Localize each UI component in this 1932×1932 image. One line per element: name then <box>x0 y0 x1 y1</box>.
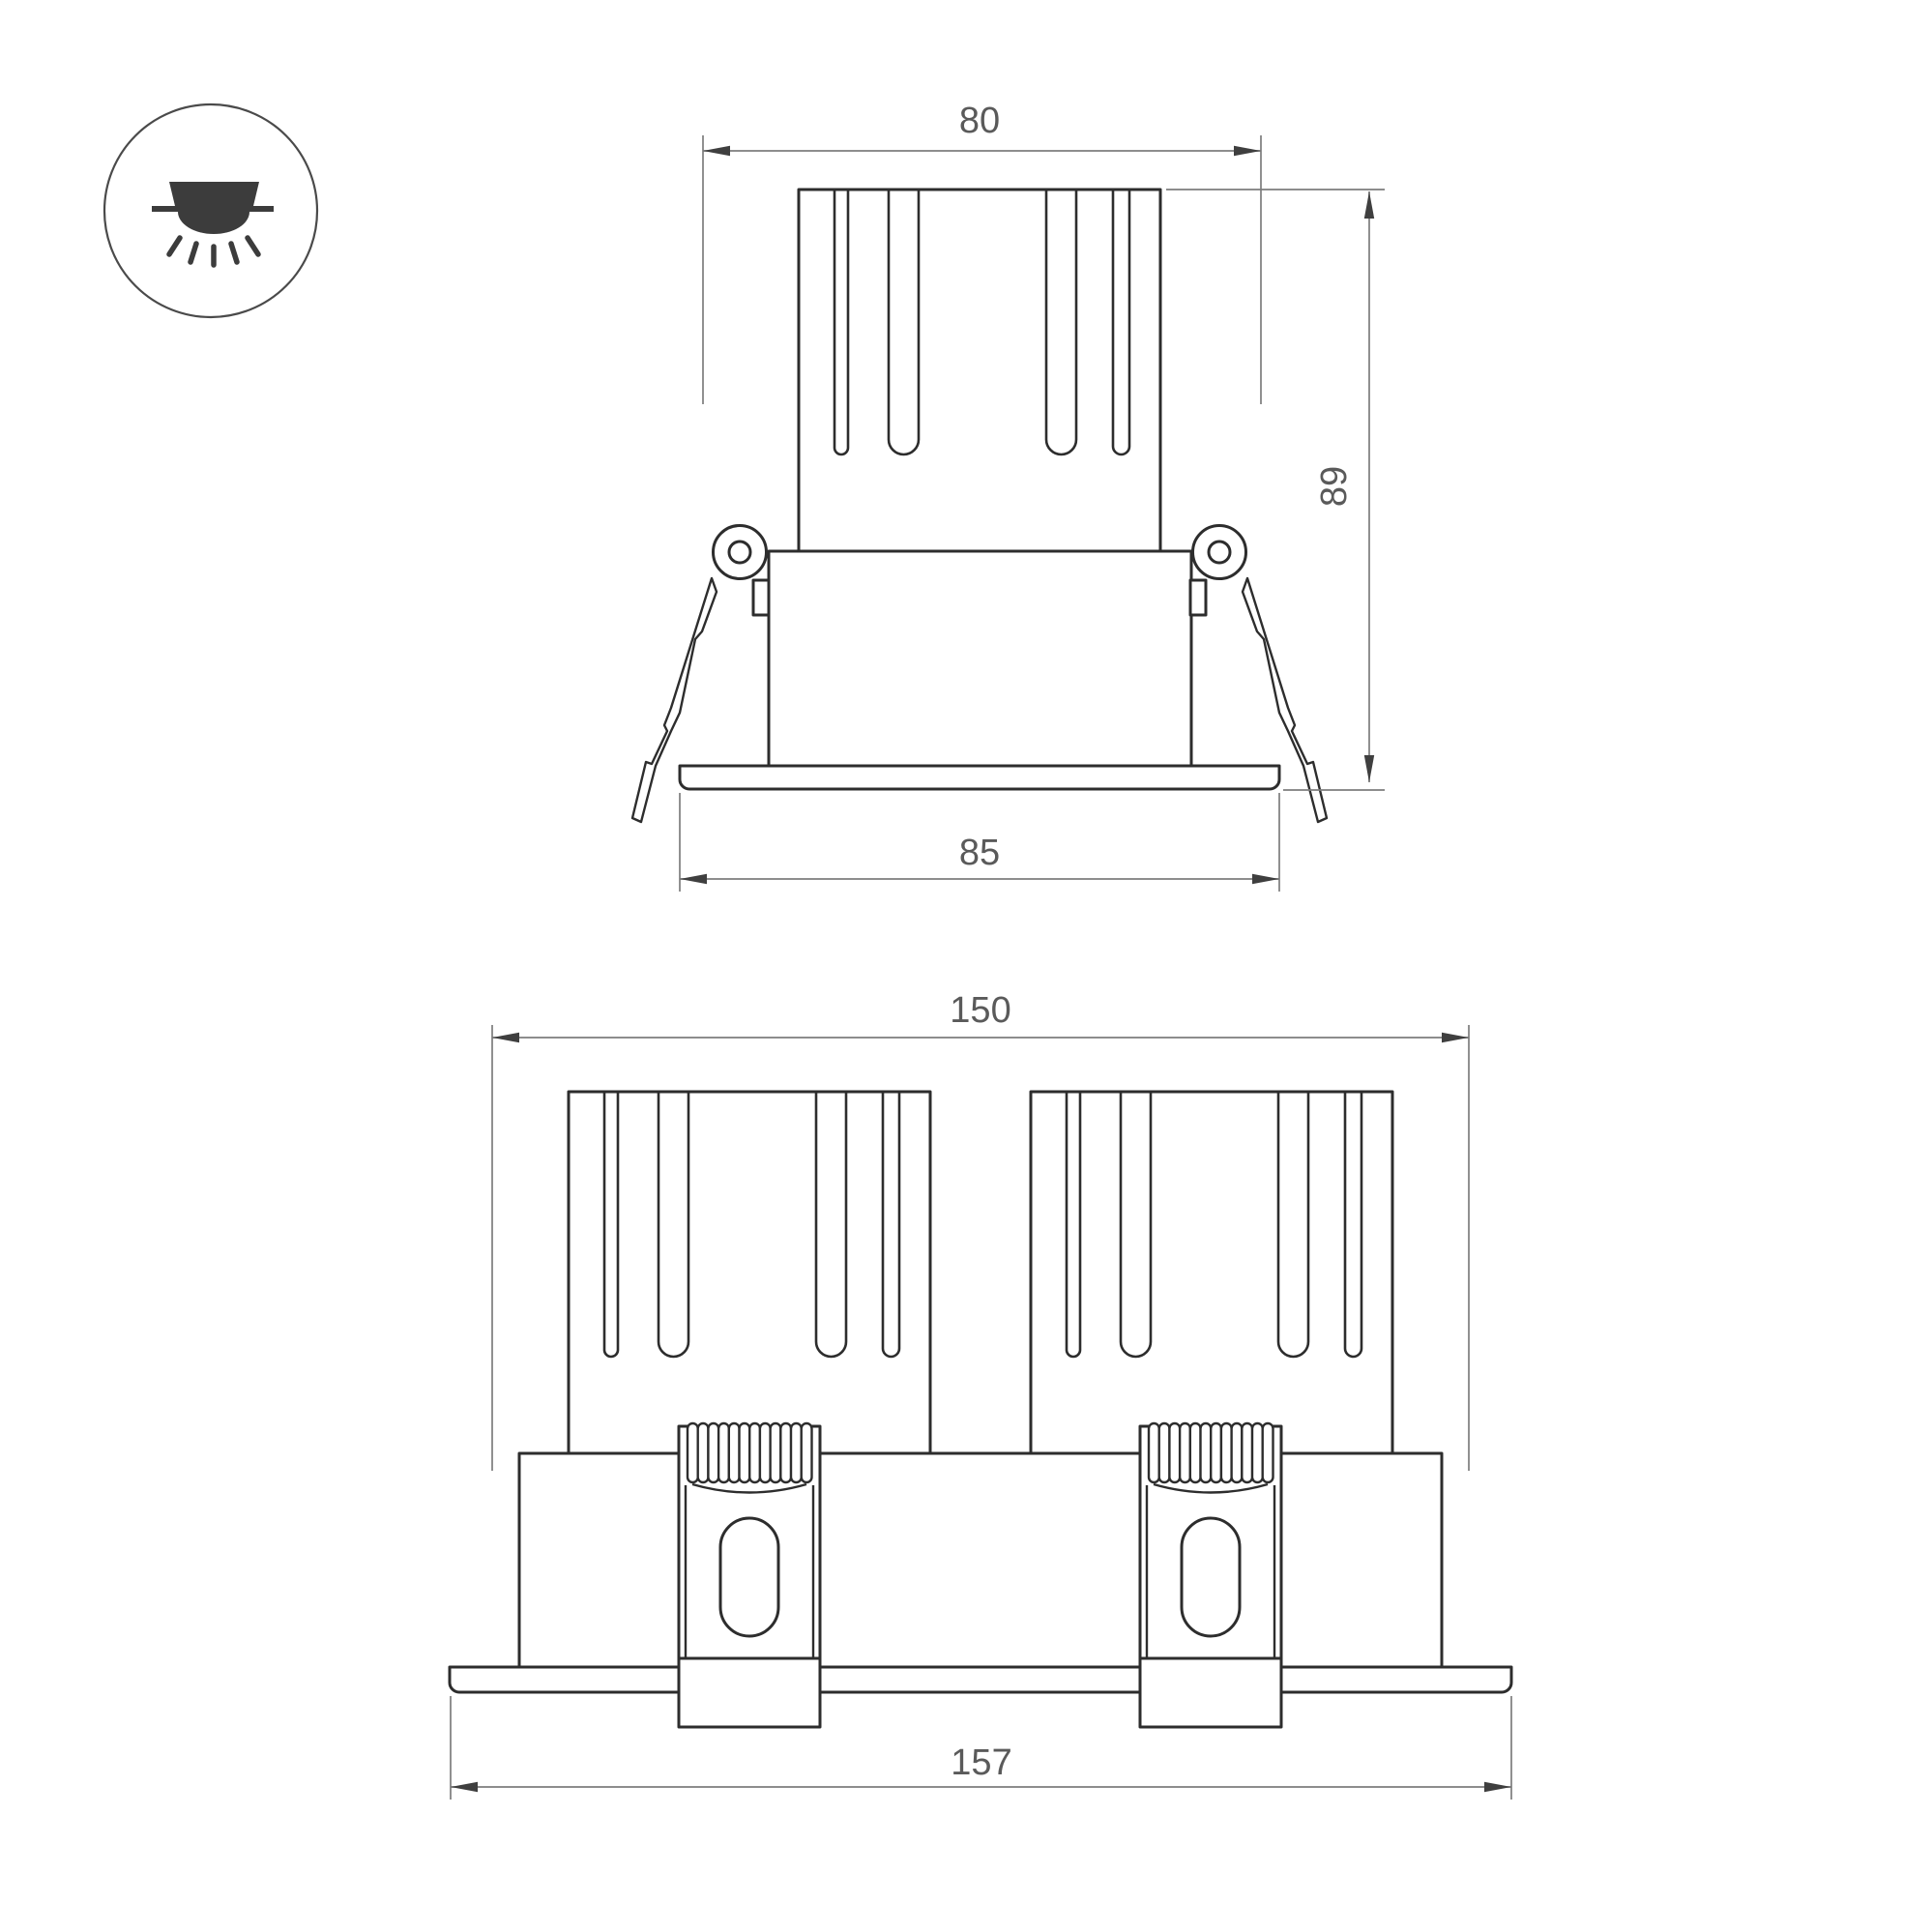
dimension-flange-width: 85 <box>680 793 1279 892</box>
single-module-front-view: 80 89 85 <box>632 101 1385 892</box>
dimension-drawing: 80 89 85 <box>0 0 1932 1932</box>
icon-lamp-body <box>169 182 259 206</box>
dimension-label-157: 157 <box>951 1742 1011 1783</box>
housing-body <box>769 551 1191 766</box>
dimension-label-80: 80 <box>959 101 1000 141</box>
drawing-canvas: 80 89 85 <box>0 0 1932 1932</box>
heatsink <box>799 190 1160 551</box>
dual-module-front-view: 150 157 <box>450 990 1511 1800</box>
spring-bracket-right <box>1140 1423 1281 1727</box>
trim-flange <box>450 1667 1511 1692</box>
dimension-label-89: 89 <box>1314 466 1355 507</box>
dimension-flange-width: 157 <box>451 1696 1511 1800</box>
spring-bracket-left <box>679 1423 820 1727</box>
heatsink-right <box>1031 1092 1392 1453</box>
icon-ceiling-line <box>152 206 274 212</box>
dimension-height: 89 <box>1166 190 1385 790</box>
dimension-label-150: 150 <box>950 990 1010 1031</box>
recessed-downlight-icon <box>104 104 317 317</box>
icon-light-dome <box>178 212 249 234</box>
trim-flange <box>680 766 1279 789</box>
heatsink-left <box>569 1092 930 1453</box>
dimension-label-85: 85 <box>959 833 1000 873</box>
icon-light-rays <box>169 238 258 265</box>
housing-body <box>519 1453 1442 1667</box>
